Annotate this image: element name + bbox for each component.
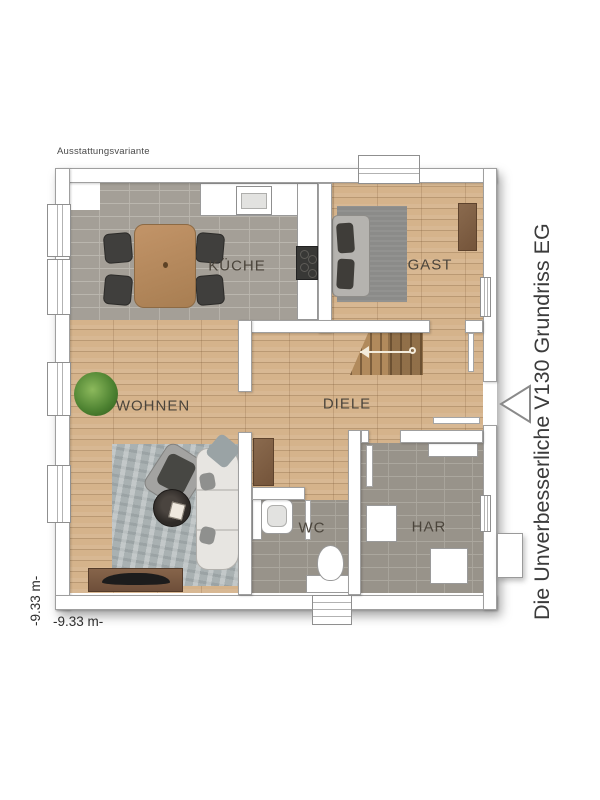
wall-kueche-gast: [318, 183, 332, 333]
wall-har-top-left: [361, 430, 369, 443]
cooktop-icon: [296, 246, 318, 280]
window-left-3: [47, 362, 71, 416]
washer-icon: [366, 505, 397, 542]
wall-top: [55, 168, 497, 183]
kitchen-sink-icon: [236, 186, 272, 215]
gast-label: GAST: [408, 257, 453, 274]
window-left-4: [47, 465, 71, 523]
kitchen-corner-step: [70, 183, 100, 210]
dining-table-icon: [134, 224, 196, 308]
window-top-gast: [358, 155, 420, 184]
dimension-width-label: -9.33 m-: [53, 614, 103, 629]
wall-right-upper: [483, 168, 497, 382]
plant-icon: [74, 372, 118, 416]
har-door-leaf: [366, 445, 373, 487]
har-counter: [428, 443, 478, 457]
wall-wohnen-lower: [238, 432, 252, 595]
wall-wc-top: [252, 487, 305, 500]
wall-gast-door-jamb: [465, 320, 483, 333]
entrance-door-leaf: [433, 417, 480, 424]
gast-wardrobe-icon: [458, 203, 477, 251]
wall-diele-north: [238, 320, 430, 333]
tv-board-icon: [88, 568, 183, 592]
har-label: HAR: [412, 519, 447, 536]
chair-icon: [103, 274, 134, 306]
wall-wohnen-upper: [238, 320, 252, 392]
diele-dresser-icon: [253, 438, 274, 486]
sink-basin: [241, 193, 267, 209]
variant-annotation: Ausstattungsvariante: [57, 146, 150, 157]
gast-sofa-icon: [332, 215, 370, 297]
coffee-table-icon: [153, 489, 191, 527]
wc-sink-icon: [261, 499, 293, 534]
toilet-icon: [317, 545, 344, 581]
gast-door-leaf: [468, 333, 474, 372]
diele-label: DIELE: [323, 396, 371, 413]
wohnen-label: WOHNEN: [116, 398, 190, 415]
kueche-label: KÜCHE: [208, 258, 266, 275]
wohnen-sofa-icon: [196, 448, 239, 570]
entry-steps: [312, 595, 352, 625]
wall-har-top-right: [400, 430, 483, 443]
chimney-box: [497, 533, 523, 578]
window-left-1: [47, 204, 71, 257]
entrance-arrow-icon: [498, 383, 534, 425]
wall-wc-har: [348, 430, 361, 595]
window-right-gast: [480, 277, 491, 317]
chair-icon: [103, 232, 134, 264]
dryer-icon: [430, 548, 468, 584]
chair-icon: [195, 274, 226, 306]
dimension-height-label: -9.33 m-: [28, 550, 43, 626]
window-left-2: [47, 259, 71, 315]
plan-title: Die Unverbesserliche V130 Grundriss EG: [530, 222, 566, 620]
wall-bottom: [55, 595, 497, 610]
window-right-har: [480, 495, 491, 532]
wc-label: WC: [299, 520, 326, 537]
